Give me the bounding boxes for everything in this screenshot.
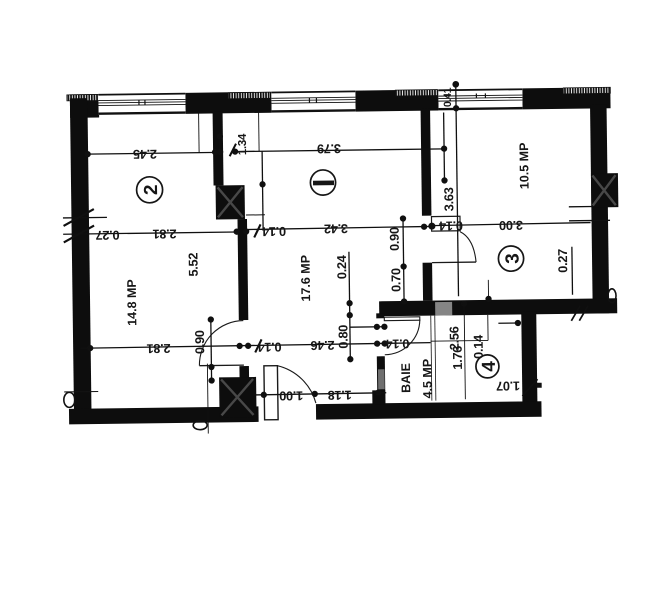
svg-text:3.00: 3.00 <box>499 218 523 233</box>
svg-text:0.90: 0.90 <box>192 330 207 354</box>
svg-text:0.14: 0.14 <box>257 340 282 355</box>
svg-text:3.79: 3.79 <box>317 141 341 156</box>
svg-text:14.8 MP: 14.8 MP <box>125 279 140 326</box>
svg-text:1.34: 1.34 <box>237 133 249 155</box>
svg-text:0.14: 0.14 <box>261 224 286 239</box>
svg-text:4.5 MP: 4.5 MP <box>420 359 435 399</box>
svg-text:3.63: 3.63 <box>441 187 456 211</box>
svg-text:3: 3 <box>502 253 523 264</box>
svg-text:0.14: 0.14 <box>471 334 486 359</box>
svg-text:1.76: 1.76 <box>450 346 465 370</box>
svg-text:0.90: 0.90 <box>387 227 402 251</box>
svg-text:3.42: 3.42 <box>324 221 348 236</box>
svg-text:BAIE: BAIE <box>399 363 413 393</box>
svg-text:2.46: 2.46 <box>311 338 335 353</box>
svg-text:1.07: 1.07 <box>496 378 520 393</box>
svg-text:2: 2 <box>141 184 162 195</box>
svg-text:1.00: 1.00 <box>279 388 303 403</box>
svg-text:0.80: 0.80 <box>335 325 350 349</box>
svg-text:2.45: 2.45 <box>133 147 157 162</box>
svg-text:0.70: 0.70 <box>388 268 403 292</box>
svg-text:5.52: 5.52 <box>185 253 200 277</box>
svg-text:2.81: 2.81 <box>153 226 177 241</box>
svg-text:0.14: 0.14 <box>438 218 463 233</box>
svg-text:4: 4 <box>479 361 500 372</box>
svg-text:10.5 MP: 10.5 MP <box>517 143 532 190</box>
svg-text:0.41: 0.41 <box>442 87 454 107</box>
svg-text:1.18: 1.18 <box>328 388 352 403</box>
svg-text:0.24: 0.24 <box>334 254 349 279</box>
svg-text:0.27: 0.27 <box>555 249 570 273</box>
svg-text:2.81: 2.81 <box>147 341 171 356</box>
svg-text:0.27: 0.27 <box>96 228 120 243</box>
svg-text:0.14: 0.14 <box>385 336 410 351</box>
svg-text:17.6 MP: 17.6 MP <box>298 255 313 302</box>
